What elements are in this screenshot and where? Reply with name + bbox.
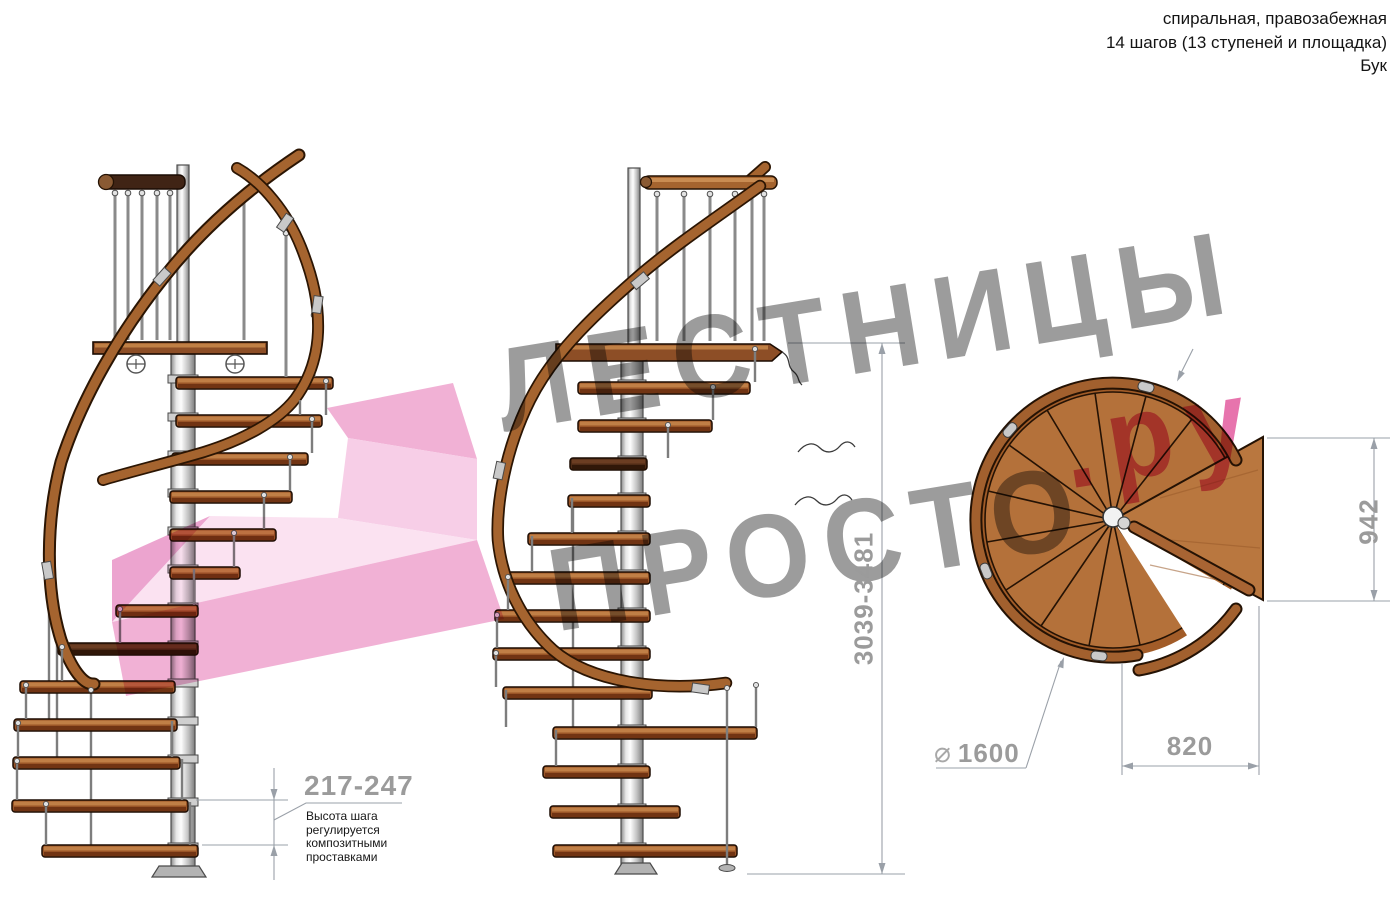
step-height-note: Высота шага регулируется композитными пр… — [306, 810, 387, 864]
dim-step-height: 217-247 — [304, 770, 414, 802]
title-type: спиральная, правозабежная — [1106, 7, 1387, 31]
title-steps: 14 шагов (13 ступеней и площадка) — [1106, 31, 1387, 55]
dim-total-height: 3039-3481 — [849, 524, 880, 674]
title-material: Бук — [1106, 54, 1387, 78]
diameter-value: 1600 — [958, 738, 1020, 768]
drawing-canvas: ЛЕСТНИЦЫ ПРОСТО.ру спиральная, правозабе… — [0, 0, 1400, 914]
title-block: спиральная, правозабежная 14 шагов (13 с… — [1106, 7, 1387, 78]
dim-landing-width: 942 — [1354, 482, 1385, 562]
dim-diameter: ⌀1600 — [934, 736, 1020, 769]
diameter-icon: ⌀ — [934, 737, 952, 768]
dim-landing-depth: 820 — [1155, 731, 1225, 762]
